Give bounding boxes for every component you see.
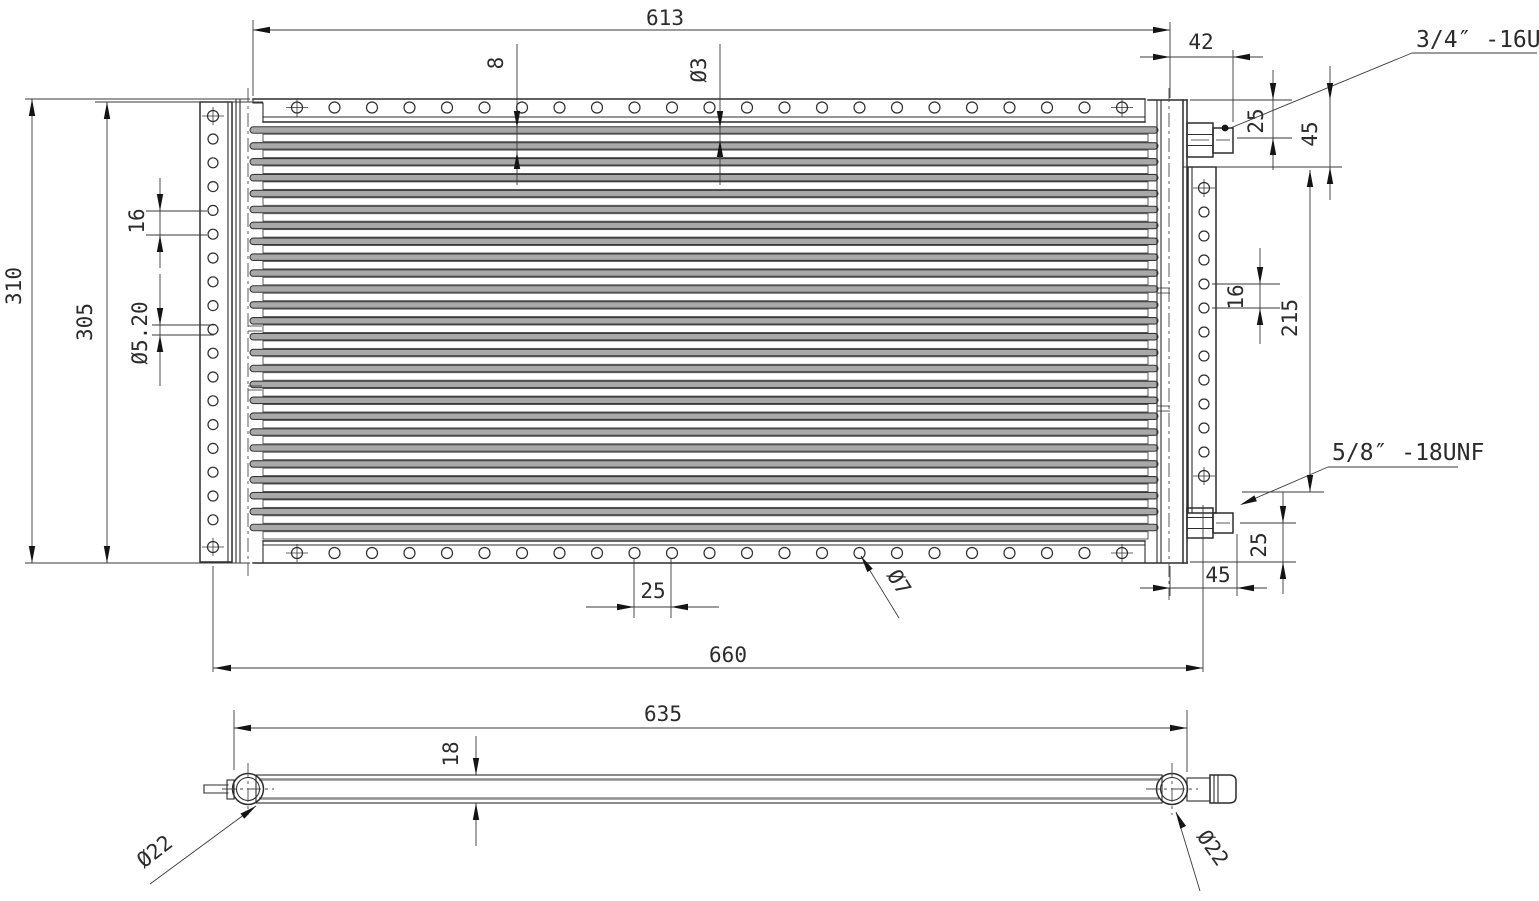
dim-overall-width-label: 660 [709,643,747,667]
arrowhead [253,27,270,33]
plate-hole [208,491,218,501]
strip-hole [629,102,640,113]
tube [250,524,1158,531]
right-plate-holes [1193,179,1215,485]
top-strip-holes [286,99,1133,117]
dim-top-plate-offset-label: 45 [1298,121,1322,146]
right-mounting-plate [1188,167,1216,513]
tube [250,333,1158,340]
leader-right-tube-dia: Ø22 [1176,812,1233,891]
dim-bottom-fitting-offset-label: 25 [1247,532,1271,557]
fin [263,214,1148,222]
dim-right-tube-dia-label: Ø22 [1192,826,1233,871]
strip-hole [329,102,340,113]
strip-hole [1004,548,1015,559]
fin [263,150,1148,158]
strip-hole [1079,548,1090,559]
tube [250,190,1158,197]
arrowhead [240,803,257,818]
fin [263,325,1148,333]
strip-hole [592,548,603,559]
arrowhead [157,308,163,325]
strip-hole [367,102,378,113]
arrowhead [1327,83,1333,100]
fin [263,293,1148,301]
dim-left-tube-dia-label: Ø22 [132,830,177,872]
arrowhead [717,111,723,128]
strip-hole [817,102,828,113]
plate-hole [208,205,218,215]
arrowhead [1153,585,1170,591]
arrowhead [1257,308,1263,325]
tube [250,413,1158,420]
dim-plate-height-label: 305 [73,303,97,341]
dim-fitting-overhang: 42 [1140,30,1263,122]
fin [263,484,1148,492]
dim-tube-length-label: 635 [644,702,682,726]
drawing-canvas: 613 42 25 45 8 Ø3 [0,0,1539,901]
plate-hole [208,372,218,382]
strip-hole [479,548,490,559]
plate-hole [208,277,218,287]
strip-hole [592,102,603,113]
front-view [200,88,1233,600]
dim-tube-length: 635 [234,702,1187,772]
tube [250,492,1158,499]
dim-mount-hole-pitch: 25 [586,558,719,618]
plate-hole [208,301,218,311]
tube [250,270,1158,277]
right-tube-end [1146,763,1236,815]
arrowhead [214,665,231,671]
dim-fitting-overhang-label: 42 [1188,30,1213,54]
plate-hole [208,396,218,406]
plate-hole [208,443,218,453]
strip-hole [1079,102,1090,113]
arrowhead [29,546,35,563]
callout-top-fitting-thread: 3/4″ -16UNF [1222,27,1539,131]
tube [250,429,1158,436]
fin [263,261,1148,269]
leader-left-tube-dia: Ø22 [132,806,256,884]
plate-hole [1199,447,1209,457]
arrowhead [1186,665,1203,671]
strip-hole [1042,102,1053,113]
strip-hole [1042,548,1053,559]
strip-hole [404,548,415,559]
dim-right-hole-pitch-label: 16 [1224,284,1248,309]
tube [250,238,1158,245]
dim-core-width: 613 [253,6,1170,98]
dim-core-thickness: 18 [439,736,476,846]
dim-core-width-label: 613 [646,6,684,30]
fin [263,420,1148,428]
tube [250,174,1158,181]
dim-overall-height-label: 310 [2,267,26,305]
fin [263,436,1148,444]
strip-hole [704,102,715,113]
dim-bottom-fitting-overhang-label: 45 [1205,563,1230,587]
fin [263,166,1148,174]
strip-hole [742,548,753,559]
strip-hole [1004,102,1015,113]
fin [263,309,1148,317]
arrowhead [1233,54,1250,60]
strip-hole [442,102,453,113]
strip-hole [667,548,678,559]
arrowhead [157,194,163,211]
plate-hole [1199,351,1209,361]
bottom-fitting-thread-label: 5/8″ -18UNF [1332,440,1484,466]
plate-hole [1199,279,1209,289]
arrowhead [617,604,634,610]
arrowhead [473,803,479,820]
plate-hole [1199,231,1209,241]
core-profile [256,775,1162,803]
strip-hole [854,102,865,113]
strip-hole [967,548,978,559]
arrowhead [1170,725,1187,731]
plate-hole [1199,399,1209,409]
plate-hole [1199,423,1209,433]
strip-hole [367,548,378,559]
plate-hole [208,515,218,525]
arrowhead [1307,170,1313,187]
tube [250,349,1158,356]
arrowhead [1173,811,1186,829]
plate-hole [208,253,218,263]
arrowhead [1239,495,1257,508]
fin [263,277,1148,285]
arrowhead [514,111,520,128]
dim-right-plate-span: 215 [1242,170,1324,492]
strip-hole [892,102,903,113]
dim-left-hole-dia-label: Ø5.20 [128,301,152,364]
dim-left-hole-dia: Ø5.20 [128,274,214,386]
arrowhead [671,604,688,610]
tube [250,365,1158,372]
tube [250,477,1158,484]
dim-core-thickness-label: 18 [439,741,463,766]
strip-hole [404,102,415,113]
dim-right-plate-span-label: 215 [1278,299,1302,337]
dim-right-hole-pitch: 16 [1212,248,1280,344]
plate-hole [1199,255,1209,265]
arrowhead [104,546,110,563]
tube [250,254,1158,261]
tube [250,222,1158,229]
plate-hole [208,467,218,477]
arrowhead [1327,167,1333,184]
arrowhead [157,235,163,252]
fin [263,341,1148,349]
dim-vent-hole-dia-label: Ø3 [687,57,711,82]
tube [250,318,1158,325]
dim-edge-hole-offset-label: 8 [484,57,508,70]
arrowhead [104,102,110,119]
bottom-strip-holes [286,544,1133,562]
fin [263,134,1148,142]
strip-hole [854,548,865,559]
tube [250,159,1158,166]
tube [250,127,1158,134]
dim-mount-hole-dia-label: Ø7 [882,565,916,599]
tube [250,381,1158,388]
tube [250,206,1158,213]
fin [263,357,1148,365]
tube [250,302,1158,309]
tube [250,397,1158,404]
tube [250,508,1158,514]
strip-hole [554,102,565,113]
fin [263,516,1148,524]
arrowhead [1280,506,1286,523]
fin [263,405,1148,413]
fin [263,452,1148,460]
arrowhead [1270,83,1276,100]
strip-hole [442,548,453,559]
strip-hole [329,548,340,559]
leader-dot [1222,125,1229,132]
plate-hole [208,134,218,144]
arrowhead [29,99,35,116]
strip-hole [817,548,828,559]
plate-hole [1199,375,1209,385]
arrowhead [157,335,163,352]
tube [250,461,1158,468]
strip-hole [554,548,565,559]
strip-hole [667,102,678,113]
strip-hole [479,102,490,113]
fin [263,246,1148,254]
condenser-technical-drawing: 613 42 25 45 8 Ø3 [0,0,1539,901]
strip-hole [779,102,790,113]
plate-hole [1199,207,1209,217]
fin [263,182,1148,190]
arrowhead [234,725,251,731]
callout-bottom-fitting-thread: 5/8″ -18UNF [1242,440,1484,504]
plate-hole [208,420,218,430]
plate-hole [208,348,218,358]
plate-hole [208,324,218,334]
plate-hole [208,158,218,168]
arrowhead [1307,475,1313,492]
tube [250,445,1158,452]
dim-top-fitting-offset: 25 [1190,70,1292,170]
fin [263,500,1148,508]
arrowhead [1237,585,1254,591]
fin [263,198,1148,206]
arrowhead [1280,562,1286,579]
bottom-view: 635 18 Ø22 Ø22 [132,702,1236,891]
plate-hole [208,182,218,192]
arrowhead [1153,54,1170,60]
strip-hole [517,548,528,559]
tube [250,286,1158,293]
strip-hole [929,102,940,113]
fin [263,389,1148,397]
arrowhead [1257,267,1263,284]
top-fitting-thread-label: 3/4″ -16UNF [1416,27,1539,53]
left-plate-holes [202,107,224,556]
dim-left-hole-pitch-label: 16 [125,208,149,233]
plate-hole [1199,303,1209,313]
strip-hole [892,548,903,559]
strip-hole [704,548,715,559]
plate-hole [208,229,218,239]
arrowhead [1153,27,1170,33]
dim-plate-height: 305 [73,102,263,563]
left-tube-end [204,763,274,815]
arrowhead [473,758,479,775]
fin [263,532,1148,539]
fin [263,230,1148,238]
fin [263,468,1148,476]
tube [250,143,1158,150]
plate-hole [1199,327,1209,337]
strip-hole [929,548,940,559]
dim-left-hole-pitch: 16 [125,178,207,268]
arrowhead [1270,138,1276,155]
dim-mount-hole-pitch-label: 25 [640,579,665,603]
strip-hole [629,548,640,559]
fin [263,373,1148,381]
strip-hole [967,102,978,113]
strip-hole [779,548,790,559]
strip-hole [742,102,753,113]
